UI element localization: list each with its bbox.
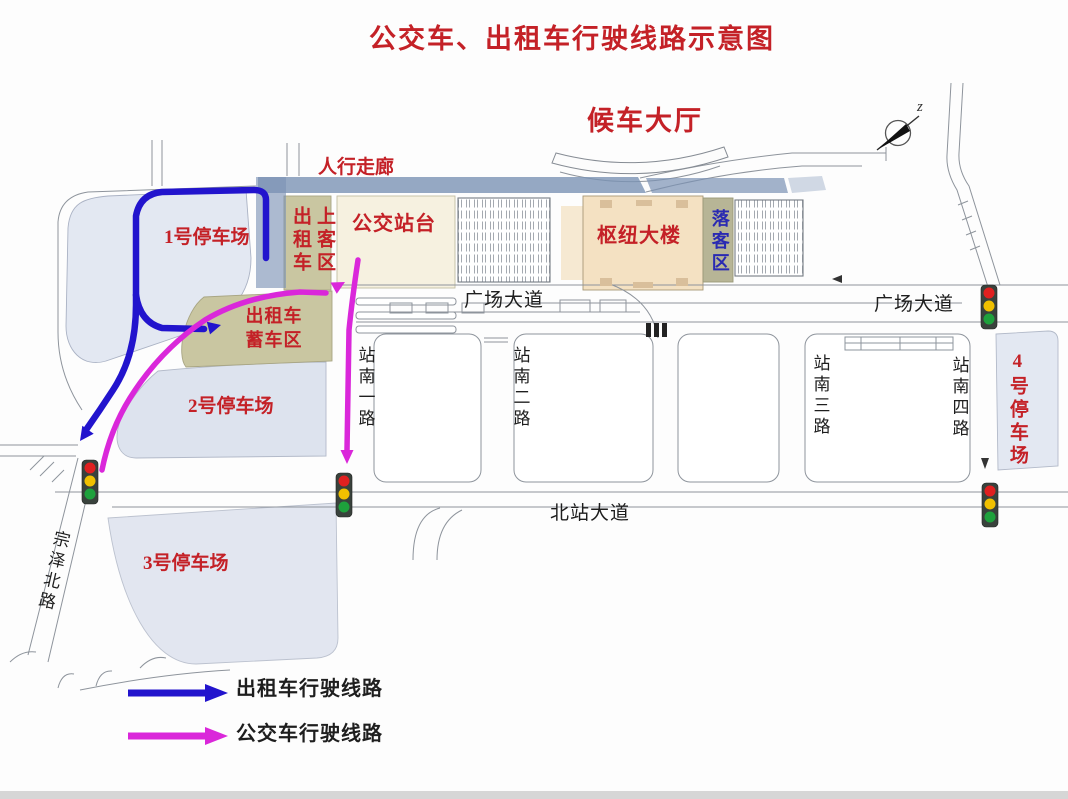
west-grid-building — [458, 198, 550, 282]
city-block-2 — [514, 334, 653, 482]
red-light-icon — [85, 463, 96, 474]
plaza-avenue-east-label: 广场大道 — [874, 294, 954, 316]
corridor-main-band — [258, 177, 646, 193]
waiting-hall-label: 候车大厅 — [560, 106, 730, 137]
waiting-hall-arc — [552, 147, 728, 174]
compass-icon — [877, 116, 919, 150]
bottom-border-bar — [0, 791, 1068, 799]
corridor-east-fade — [788, 176, 826, 193]
red-light-icon — [984, 288, 995, 299]
city-block-3 — [678, 334, 779, 482]
platform-bay-3 — [356, 326, 456, 333]
taxi-pickup-label: 出租车上客区 — [288, 206, 336, 280]
hub-building-label: 枢纽大楼 — [597, 225, 681, 248]
traffic-light-south1 — [336, 473, 352, 517]
bus-route-exit-arrowhead — [341, 450, 354, 464]
platform-bay-1 — [356, 298, 456, 305]
legend-taxi-arrowhead — [205, 684, 228, 702]
legend-bus-label: 公交车行驶线路 — [236, 723, 383, 746]
green-light-icon — [984, 314, 995, 325]
city-block-1 — [374, 334, 481, 482]
parking3-label: 3号停车场 — [143, 553, 229, 575]
parking2-label: 2号停车场 — [188, 396, 274, 418]
hub-west-wing — [561, 206, 583, 280]
corridor-east-band — [646, 178, 788, 193]
station-south-4-label: 站南四路 — [949, 356, 969, 440]
corridor-label: 人行走廊 — [318, 157, 394, 179]
plaza-avenue-west-label: 广场大道 — [464, 290, 544, 312]
traffic-light-zongze — [82, 460, 98, 504]
red-light-icon — [339, 476, 350, 487]
legend-bus-arrowhead — [205, 727, 228, 745]
parking3-area — [108, 503, 338, 664]
dropoff-label: 落客区 — [709, 209, 730, 275]
diagram-title: 公交车、出租车行驶线路示意图 — [332, 24, 812, 55]
route-diagram: 公交车、出租车行驶线路示意图 候车大厅 人行走廊 1号停车场 出租车上客区 公交… — [0, 0, 1068, 799]
parking4-label: 4号停车场 — [1006, 351, 1028, 468]
taxi-staging-label: 出租车蓄车区 — [243, 304, 305, 352]
traffic-light-plaza-east — [981, 285, 997, 329]
traffic-light-northave-east — [982, 483, 998, 527]
diagram-canvas — [0, 0, 1068, 799]
east-grid-building — [735, 200, 803, 276]
green-light-icon — [985, 512, 996, 523]
green-light-icon — [339, 502, 350, 513]
yellow-light-icon — [984, 301, 995, 312]
yellow-light-icon — [339, 489, 350, 500]
terminal-dark-hatch — [646, 323, 667, 337]
north-station-avenue-label: 北站大道 — [550, 503, 630, 525]
legend-taxi-label: 出租车行驶线路 — [236, 678, 383, 701]
compass-north-glyph: z — [917, 99, 923, 116]
yellow-light-icon — [985, 499, 996, 510]
bus-platform-label: 公交站台 — [352, 213, 436, 236]
red-light-icon — [985, 486, 996, 497]
station-south-3-label: 站南三路 — [810, 354, 830, 438]
station-south-2-label: 站南二路 — [510, 346, 530, 430]
legend-arrows — [128, 684, 228, 745]
lane-arrow-south-road4 — [981, 458, 989, 469]
station-south-1-label: 站南一路 — [355, 346, 375, 430]
lane-arrow-plaza — [832, 275, 842, 283]
yellow-light-icon — [85, 476, 96, 487]
parking1-label: 1号停车场 — [164, 227, 250, 249]
green-light-icon — [85, 489, 96, 500]
